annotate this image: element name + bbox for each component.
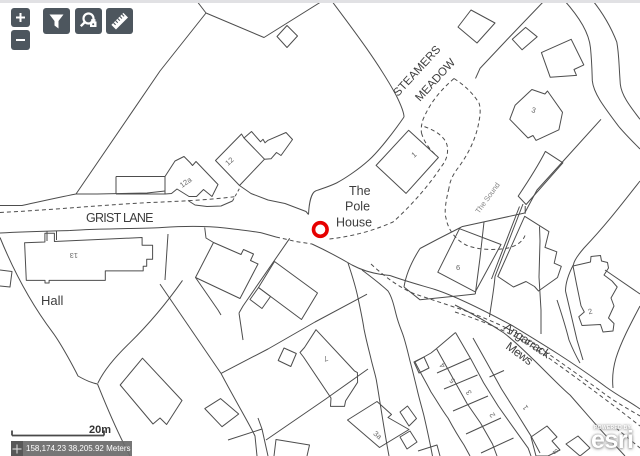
svg-text:1: 1 (520, 403, 530, 412)
svg-text:The Sound: The Sound (473, 181, 501, 215)
svg-text:12: 12 (223, 155, 235, 167)
svg-text:3a: 3a (371, 429, 384, 442)
svg-text:13: 13 (70, 251, 78, 260)
svg-text:1: 1 (410, 150, 419, 160)
svg-text:7: 7 (322, 354, 329, 364)
svg-text:3: 3 (464, 388, 474, 397)
svg-text:3: 3 (530, 105, 536, 115)
svg-text:The: The (349, 184, 371, 198)
svg-text:6: 6 (456, 263, 460, 272)
svg-text:2: 2 (487, 411, 497, 420)
svg-text:Pole: Pole (345, 200, 370, 214)
svg-text:House: House (336, 216, 372, 230)
svg-text:20m: 20m (89, 424, 111, 436)
svg-text:2: 2 (587, 307, 593, 317)
svg-text:Hall: Hall (41, 293, 64, 308)
svg-text:12a: 12a (178, 175, 194, 190)
svg-text:GRIST LANE: GRIST LANE (86, 211, 154, 225)
